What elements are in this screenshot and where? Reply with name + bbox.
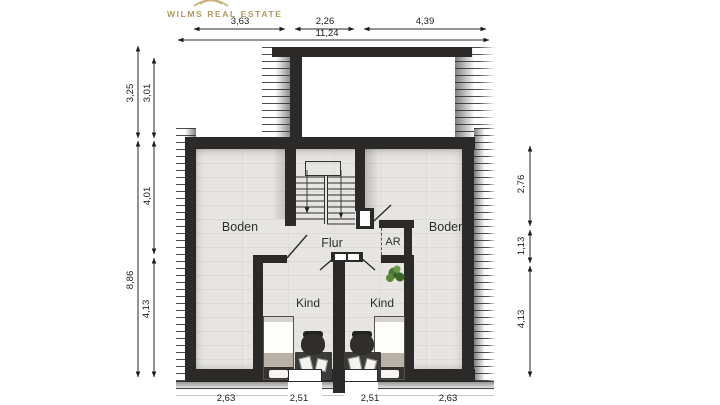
room-label-kind-right: Kind <box>364 296 400 310</box>
bed-blanket <box>264 353 293 367</box>
room-label-ar: AR <box>382 236 404 248</box>
dormer-left-wall <box>290 47 302 147</box>
stair-right-wall <box>355 149 365 211</box>
dormer-top-wall <box>272 47 472 57</box>
dim-label-bottom-1: 2,63 <box>208 393 244 405</box>
room-label-boden-right: Boden <box>419 220 475 234</box>
dim-label-bottom-3: 2,51 <box>352 393 388 405</box>
roof-hatch-dormer-left <box>262 47 292 139</box>
dim-label-left-inner-2: 4,01 <box>142 178 154 214</box>
ar-top-wall <box>379 220 414 228</box>
window-kind-left <box>288 369 322 382</box>
stair-left-wall <box>285 149 296 226</box>
window-kind-right <box>344 369 378 382</box>
dim-label-left-outer-1: 3,25 <box>125 75 137 111</box>
roof-hatch-right <box>474 128 496 390</box>
dim-label-right-2: 1,13 <box>516 228 528 264</box>
office-chair-left <box>301 334 325 355</box>
brand-emblem-icon <box>194 0 228 6</box>
office-chair-right <box>350 334 374 355</box>
room-label-boden-left: Boden <box>212 220 268 234</box>
dim-label-left-inner-1: 3,01 <box>142 75 154 111</box>
cabinet-door <box>335 254 346 260</box>
room-label-flur: Flur <box>312 236 352 250</box>
dim-label-top-total: 11,24 <box>309 28 345 40</box>
dim-label-left-inner-3: 4,13 <box>141 291 153 327</box>
kind-left-outer-wall <box>253 255 263 382</box>
dormer-floor <box>302 57 455 137</box>
bed-headboard <box>264 317 293 322</box>
dim-label-left-outer-2: 8,86 <box>125 262 137 298</box>
main-floor <box>196 149 463 370</box>
kind-right-outer-wall <box>404 255 414 382</box>
cabinet-door <box>348 254 359 260</box>
bed-pillow <box>269 370 288 378</box>
main-right-wall <box>462 137 474 382</box>
ar-right-wall <box>404 228 412 263</box>
dim-label-top-3: 4,39 <box>407 16 443 28</box>
bed-headboard <box>375 317 404 322</box>
floorplan-canvas: Boden Boden Flur AR Kind Kind 3,63 2,26 … <box>0 0 720 405</box>
dim-label-right-1: 2,76 <box>516 166 528 202</box>
room-label-kind-left: Kind <box>290 296 326 310</box>
brand-name: WILMS REAL ESTATE <box>167 9 283 19</box>
bed-pillow <box>380 370 399 378</box>
main-top-wall <box>185 137 475 149</box>
dim-label-bottom-4: 2,63 <box>430 393 466 405</box>
main-left-wall <box>185 137 196 382</box>
dim-label-bottom-2: 2,51 <box>281 393 317 405</box>
dim-label-right-3: 4,13 <box>516 301 528 337</box>
stair-door-leaf <box>360 211 370 226</box>
dim-label-top-2: 2,26 <box>307 16 343 28</box>
